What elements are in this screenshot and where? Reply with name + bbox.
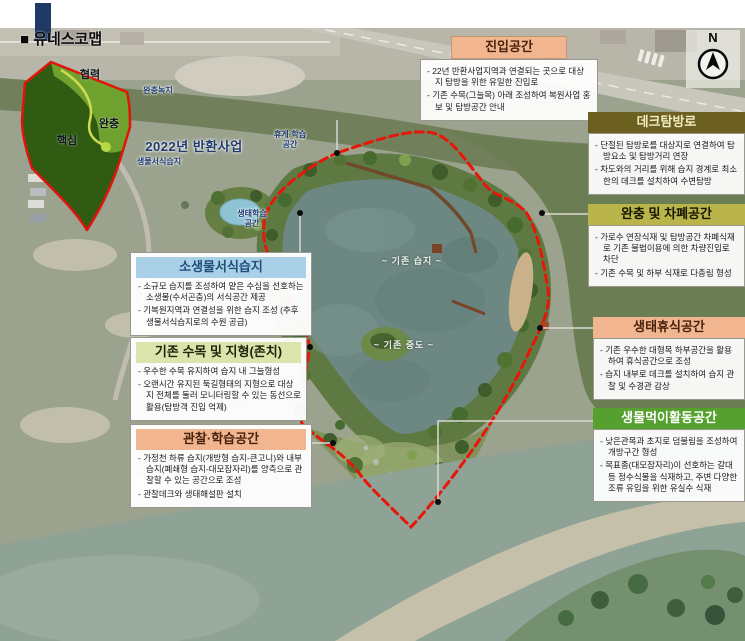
plan-map-page: 협력 완충 핵심 ■ 유네스코맵 완충녹지 2022년 반환사업 생물서식습지 …: [0, 0, 745, 641]
north-arrow-icon: [695, 46, 731, 82]
label-existing-wetland: ~ 기존 습지 ~: [382, 254, 442, 267]
callout-existing-trees-title: 기존 수목 및 지형(존치): [136, 342, 301, 363]
label-eco-learning-line2: 공간: [237, 219, 266, 229]
north-label: N: [686, 30, 740, 46]
callout-eco-rest-body: - 기존 우수한 대형목 하부공간을 활용하여 휴식공간으로 조성 - 습지 내…: [593, 338, 745, 400]
callout-observe-learn-bullet: - 관찰데크와 생태해설판 설치: [136, 489, 306, 500]
callout-entry-space: 진입공간 - 22년 반환사업지역과 연결되는 곳으로 대상지 탐방을 위한 유…: [420, 36, 598, 121]
page-title: ■ 유네스코맵: [20, 28, 102, 49]
callout-deck-trail-title: 데크탐방로: [588, 112, 745, 133]
callout-deck-trail: 데크탐방로 - 단절된 탐방로를 대상지로 연결하여 탐방요소 및 탐방거리 연…: [588, 112, 745, 195]
callout-eco-rest-bullet: - 기존 우수한 대형목 하부공간을 활용하여 휴식공간으로 조성: [600, 345, 738, 367]
label-rest-learning-line1: 휴게·학습: [274, 130, 306, 140]
callout-eco-rest-title: 생태휴식공간: [593, 317, 745, 338]
callout-existing-trees-bullet: - 우수한 수목 유지하여 습지 내 그늘형성: [136, 366, 301, 377]
inset-label-buffer: 완충: [99, 115, 119, 131]
callout-deck-trail-body: - 단절된 탐방로를 대상지로 연결하여 탐방요소 및 탐방거리 연장 - 차도…: [588, 133, 745, 195]
inset-label-cooperation: 협력: [80, 66, 100, 82]
callout-observe-learn-bullet: - 가정천 하류 습지(개방형 습지-큰고니)와 내부 습지(폐쇄형 습지-대모…: [136, 453, 306, 487]
callout-eco-rest-bullet: - 습지 내부로 데크를 설치하여 습지 관찰 및 수경관 감상: [600, 369, 738, 391]
callout-small-habitat-bullet: - 소규모 습지를 조성하여 얕은 수심을 선호하는 소생물(수서곤충)의 서식…: [136, 281, 306, 303]
label-bio-habitat-wetland: 생물서식습지: [137, 156, 181, 167]
callout-entry-body: - 22년 반환사업지역과 연결되는 곳으로 대상지 탐방을 위한 유일한 진입…: [420, 59, 598, 121]
callout-feeding-bullet: - 목표종(대모잠자리)이 선호하는 갈대 등 정수식물을 식재하고, 주변 다…: [600, 460, 738, 494]
callout-entry-bullet: - 22년 반환사업지역과 연결되는 곳으로 대상지 탐방을 위한 유일한 진입…: [427, 66, 591, 88]
callout-feeding-bullet: - 낮은관목과 초지로 덤불림을 조성하여 개방구간 형성: [600, 436, 738, 458]
callout-existing-trees: 기존 수목 및 지형(존치) - 우수한 수목 유지하여 습지 내 그늘형성 -…: [130, 337, 307, 421]
callout-buffer-screen-title: 완충 및 차폐공간: [588, 204, 745, 225]
callout-small-habitat-bullet: - 기복원지역과 연결성을 위한 습지 조성 (추후 생물서식습지로의 수원 공…: [136, 305, 306, 327]
callout-deck-trail-bullet: - 단절된 탐방로를 대상지로 연결하여 탐방요소 및 탐방거리 연장: [595, 140, 738, 162]
callout-observe-learn-title: 관찰·학습공간: [136, 429, 306, 450]
callout-entry-title: 진입공간: [451, 36, 567, 59]
label-eco-learning-line1: 생태학습: [237, 209, 266, 219]
label-rest-learning-line2: 공간: [274, 140, 306, 150]
callout-existing-trees-bullet: - 오랜시간 유지된 둑길형태의 지형으로 대상지 전체를 둘러 모니터링할 수…: [136, 379, 301, 413]
label-return-project-2022: 2022년 반환사업: [145, 136, 242, 155]
inset-label-core: 핵심: [57, 132, 77, 148]
label-existing-mid-island: ~ 기존 중도 ~: [374, 338, 434, 351]
callout-feeding-body: - 낮은관목과 초지로 덤불림을 조성하여 개방구간 형성 - 목표종(대모잠자…: [593, 429, 745, 502]
callout-eco-rest: 생태휴식공간 - 기존 우수한 대형목 하부공간을 활용하여 휴식공간으로 조성…: [593, 317, 745, 400]
callout-feeding-title: 생물먹이활동공간: [593, 408, 745, 429]
label-eco-learning-space: 생태학습 공간: [237, 209, 266, 228]
callout-buffer-screen-bullet: - 기존 수목 및 하부 식재로 다층림 형성: [595, 268, 738, 279]
north-indicator: N: [686, 30, 740, 88]
callout-buffer-screen-body: - 가로수 연장식재 및 탐방공간 차폐식재로 기존 불법이용에 의한 차량진입…: [588, 225, 745, 287]
callout-buffer-screen: 완충 및 차폐공간 - 가로수 연장식재 및 탐방공간 차폐식재로 기존 불법이…: [588, 204, 745, 287]
callout-feeding-space: 생물먹이활동공간 - 낮은관목과 초지로 덤불림을 조성하여 개방구간 형성 -…: [593, 408, 745, 502]
label-rest-learning-space: 휴게·학습 공간: [274, 130, 306, 149]
callout-buffer-screen-bullet: - 가로수 연장식재 및 탐방공간 차폐식재로 기존 불법이용에 의한 차량진입…: [595, 232, 738, 266]
label-buffer-green: 완충녹지: [143, 85, 172, 96]
callout-small-habitat-title: 소생물서식습지: [136, 257, 306, 278]
callout-entry-bullet: - 기존 수목(그늘목) 아래 조성하여 복원사업 홍보 및 탐방공간 안내: [427, 90, 591, 112]
callout-deck-trail-bullet: - 차도와의 거리를 위해 습지 경계로 최소한의 데크를 설치하여 수변탐방: [595, 164, 738, 186]
callout-small-habitat: 소생물서식습지 - 소규모 습지를 조성하여 얕은 수심을 선호하는 소생물(수…: [130, 252, 312, 336]
callout-observe-learn: 관찰·학습공간 - 가정천 하류 습지(개방형 습지-큰고니)와 내부 습지(폐…: [130, 424, 312, 508]
